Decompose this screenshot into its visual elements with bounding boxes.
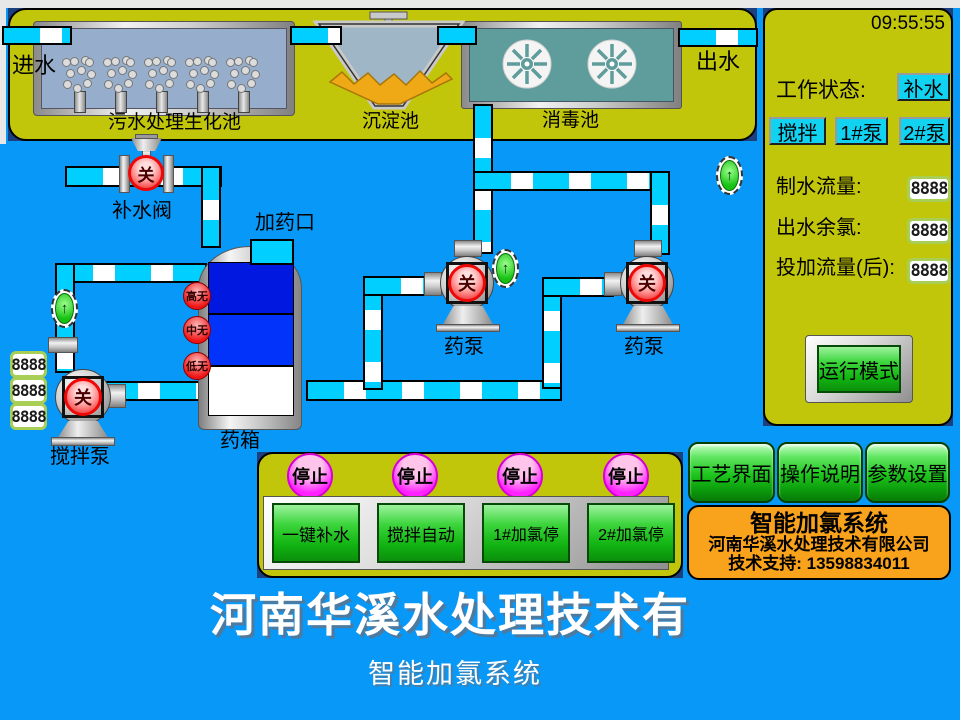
supply-valve-label: 补水阀 [112, 200, 172, 222]
metric-value-dosing: 8888 [907, 258, 951, 284]
dosing-pump2-label: 药泵 [624, 336, 664, 358]
bubble [126, 58, 135, 67]
bubble [111, 57, 120, 66]
aeration-nozzle [115, 91, 127, 113]
bubble [226, 58, 235, 67]
bubble [241, 66, 250, 75]
aeration-nozzle [238, 91, 250, 113]
footer-company-title: 河南华溪水处理技术有 [0, 590, 900, 641]
clock: 09:55:55 [845, 14, 945, 35]
bubble [107, 69, 116, 78]
tank-level-high-section [208, 262, 294, 314]
stir-pump-collar [48, 337, 78, 353]
level-lamp-low: 低无 [183, 352, 211, 380]
dosing-pump1-plate [436, 324, 500, 332]
pool-label-disinfection: 消毒池 [542, 111, 599, 132]
stop-lamp-4: 停止 [603, 453, 649, 499]
metric-value-flow: 8888 [907, 176, 951, 202]
bubble [155, 84, 164, 93]
footer-system-subtitle: 智能加氯系统 [0, 660, 910, 690]
aeration-nozzle [74, 91, 86, 113]
bubble [128, 70, 137, 79]
bubble [185, 58, 194, 67]
bubble [251, 70, 260, 79]
level-lamp-high: 高无 [183, 282, 211, 310]
bubble [87, 70, 96, 79]
left-display-2: 8888 [10, 377, 47, 404]
flow-indicator-pump1: ↑ [492, 249, 519, 288]
bubble [210, 70, 219, 79]
stir-pump-state-indicator[interactable]: 关 [64, 378, 102, 416]
up-arrow-icon: ↑ [55, 293, 74, 324]
pipe-top-branch [473, 171, 670, 191]
chlorine1-stop-button[interactable]: 1#加氯停 [482, 503, 570, 563]
dosing-port-inlet [250, 239, 294, 265]
window-left-strip [0, 0, 6, 144]
outlet-label: 出水 [696, 50, 740, 74]
dosing-pump2-state-indicator[interactable]: 关 [628, 264, 666, 302]
stir-auto-button[interactable]: 搅拌自动 [377, 503, 465, 563]
metric-label-flow: 制水流量: [776, 176, 862, 198]
bubble [144, 58, 153, 67]
bubble [114, 84, 123, 93]
up-arrow-icon: ↑ [496, 253, 515, 284]
stop-lamp-3: 停止 [497, 453, 543, 499]
stir-pump-plate [51, 437, 115, 446]
dosing-pump1-state-indicator[interactable]: 关 [448, 264, 486, 302]
flow-indicator-right: ↑ [716, 156, 743, 195]
dosing-pump2-plate [616, 324, 680, 332]
bubble [159, 66, 168, 75]
run-mode-button[interactable]: 运行模式 [817, 345, 901, 393]
bubble [152, 57, 161, 66]
bubble [118, 66, 127, 75]
aeration-nozzle [156, 91, 168, 113]
pipe-left-loop-top [55, 263, 207, 283]
dosing-pump1-collar [454, 240, 482, 257]
disinfect-pool-water [469, 28, 674, 102]
bubble [234, 57, 243, 66]
bubble [169, 70, 178, 79]
bubble [70, 57, 79, 66]
valve-actuator-cap [135, 134, 158, 139]
bubble [208, 58, 217, 67]
bubble [148, 69, 157, 78]
metric-label-chlorine: 出水余氯: [776, 217, 862, 239]
pool1-pool2-pipe [290, 26, 342, 45]
company-box-support: 技术支持: 13598834011 [728, 555, 909, 574]
bubble [77, 66, 86, 75]
one-key-replenish-button[interactable]: 一键补水 [272, 503, 360, 563]
flow-indicator-left: ↑ [51, 289, 78, 328]
bubble [189, 69, 198, 78]
metric-label-dosing: 投加流量(后): [776, 257, 895, 279]
bubble [85, 58, 94, 67]
hmi-screen: 河南华溪水处理技术有 智能加氯系统 [0, 0, 960, 720]
outlet-pipe [678, 28, 758, 47]
bubble [206, 79, 215, 88]
status-button-pump1[interactable]: 1#泵 [835, 117, 888, 145]
valve-flange-right [163, 155, 174, 193]
dosing-pump1-label: 药泵 [444, 336, 484, 358]
bubble [193, 57, 202, 66]
up-arrow-icon: ↑ [720, 160, 739, 191]
bubble [237, 84, 246, 93]
nav-process-screen-button[interactable]: 工艺界面 [688, 442, 775, 503]
window-top-strip [0, 0, 960, 8]
nav-operation-help-button[interactable]: 操作说明 [777, 442, 863, 503]
stir-pump-label: 搅拌泵 [50, 446, 110, 468]
bubble [196, 84, 205, 93]
bubble [227, 80, 236, 89]
dosing-pump2-base [622, 306, 674, 326]
bubble [124, 79, 133, 88]
aeration-nozzle [197, 91, 209, 113]
dosing-pump1-base [442, 306, 494, 326]
pool-label-biochem: 污水处理生化池 [108, 113, 241, 134]
bubble [247, 79, 256, 88]
company-box-name: 河南华溪水处理技术有限公司 [709, 536, 930, 555]
bubble [249, 58, 258, 67]
bubble [230, 69, 239, 78]
bubble [145, 80, 154, 89]
nav-parameter-settings-button[interactable]: 参数设置 [865, 442, 950, 503]
bubble [104, 80, 113, 89]
pool2-pool3-pipe [437, 26, 477, 45]
company-box-title: 智能加氯系统 [750, 511, 888, 536]
pipe-tank-outlet-main [306, 380, 562, 401]
valve-actuator [131, 138, 162, 151]
bubble [165, 79, 174, 88]
left-display-3: 8888 [10, 403, 47, 430]
company-box: 智能加氯系统 河南华溪水处理技术有限公司 技术支持: 13598834011 [687, 505, 951, 580]
stop-lamp-1: 停止 [287, 453, 333, 499]
status-button-replenish[interactable]: 补水 [897, 73, 950, 101]
dosing-pump2-collar [634, 240, 662, 257]
bubble [63, 80, 72, 89]
work-status-label: 工作状态: [776, 79, 866, 102]
pool-label-sedimentation: 沉淀池 [362, 112, 419, 133]
bubble [66, 69, 75, 78]
left-display-1: 8888 [10, 351, 47, 378]
status-button-stir[interactable]: 搅拌 [769, 117, 826, 145]
bubble [83, 79, 92, 88]
bubble [62, 58, 71, 67]
tank-label: 药箱 [220, 430, 260, 452]
stop-lamp-2: 停止 [392, 453, 438, 499]
tank-level-low-section [208, 366, 294, 416]
inlet-label: 进水 [12, 54, 56, 78]
dosing-port-label: 加药口 [255, 212, 315, 234]
pipe-riser1-to-pump1 [363, 276, 433, 296]
metric-value-chlorine: 8888 [907, 218, 951, 244]
pipe-valve-to-tank [201, 166, 221, 248]
chlorine2-stop-button[interactable]: 2#加氯停 [587, 503, 675, 563]
status-button-pump2[interactable]: 2#泵 [899, 117, 950, 145]
bubble [200, 66, 209, 75]
bubble [167, 58, 176, 67]
bubble [73, 84, 82, 93]
level-lamp-mid: 中无 [183, 316, 211, 344]
tank-level-mid-section [208, 314, 294, 366]
inlet-pipe [2, 26, 72, 45]
bubble [103, 58, 112, 67]
supply-valve-state-indicator[interactable]: 关 [128, 155, 164, 191]
bubble [186, 80, 195, 89]
